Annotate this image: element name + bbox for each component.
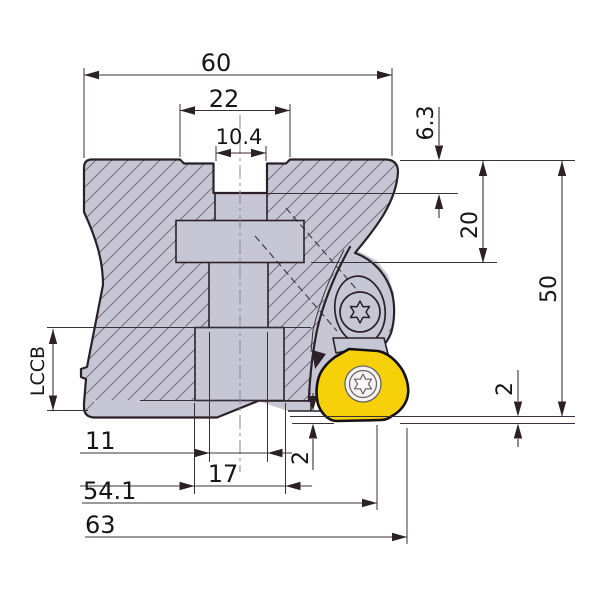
dim-11: 11 [80, 427, 292, 457]
dim-label-20: 20 [458, 211, 483, 239]
dim-label-2-right: 2 [493, 382, 518, 396]
cutting-insert [317, 349, 409, 421]
clamp-screw-head [340, 292, 380, 332]
dim-label-50: 50 [537, 275, 562, 303]
dim-label-60: 60 [201, 49, 232, 77]
dim-label-54-1: 54.1 [83, 477, 136, 505]
technical-drawing: 60 22 10.4 6.3 20 [0, 0, 600, 600]
dim-label-2-bottom: 2 [289, 451, 314, 465]
dim-22: 22 [180, 85, 290, 115]
drawing-canvas: 60 22 10.4 6.3 20 [0, 0, 600, 600]
dim-6-3: 6.3 [414, 106, 443, 219]
dim-label-11: 11 [85, 427, 116, 455]
hub-boss [195, 328, 284, 401]
dim-10-4: 10.4 [216, 125, 266, 157]
dim-lccb: LCCB [27, 329, 57, 411]
dim-label-17: 17 [208, 460, 239, 488]
dim-50: 50 [537, 161, 566, 417]
dim-63: 63 [85, 511, 407, 541]
dim-label-lccb: LCCB [27, 346, 49, 396]
dim-label-63: 63 [85, 511, 116, 539]
dim-2-right: 2 [493, 370, 522, 447]
dim-60: 60 [84, 49, 392, 79]
dim-label-22: 22 [209, 85, 240, 113]
dim-20: 20 [458, 161, 487, 263]
dim-label-6-3: 6.3 [414, 106, 439, 141]
dim-label-10-4: 10.4 [216, 125, 263, 149]
